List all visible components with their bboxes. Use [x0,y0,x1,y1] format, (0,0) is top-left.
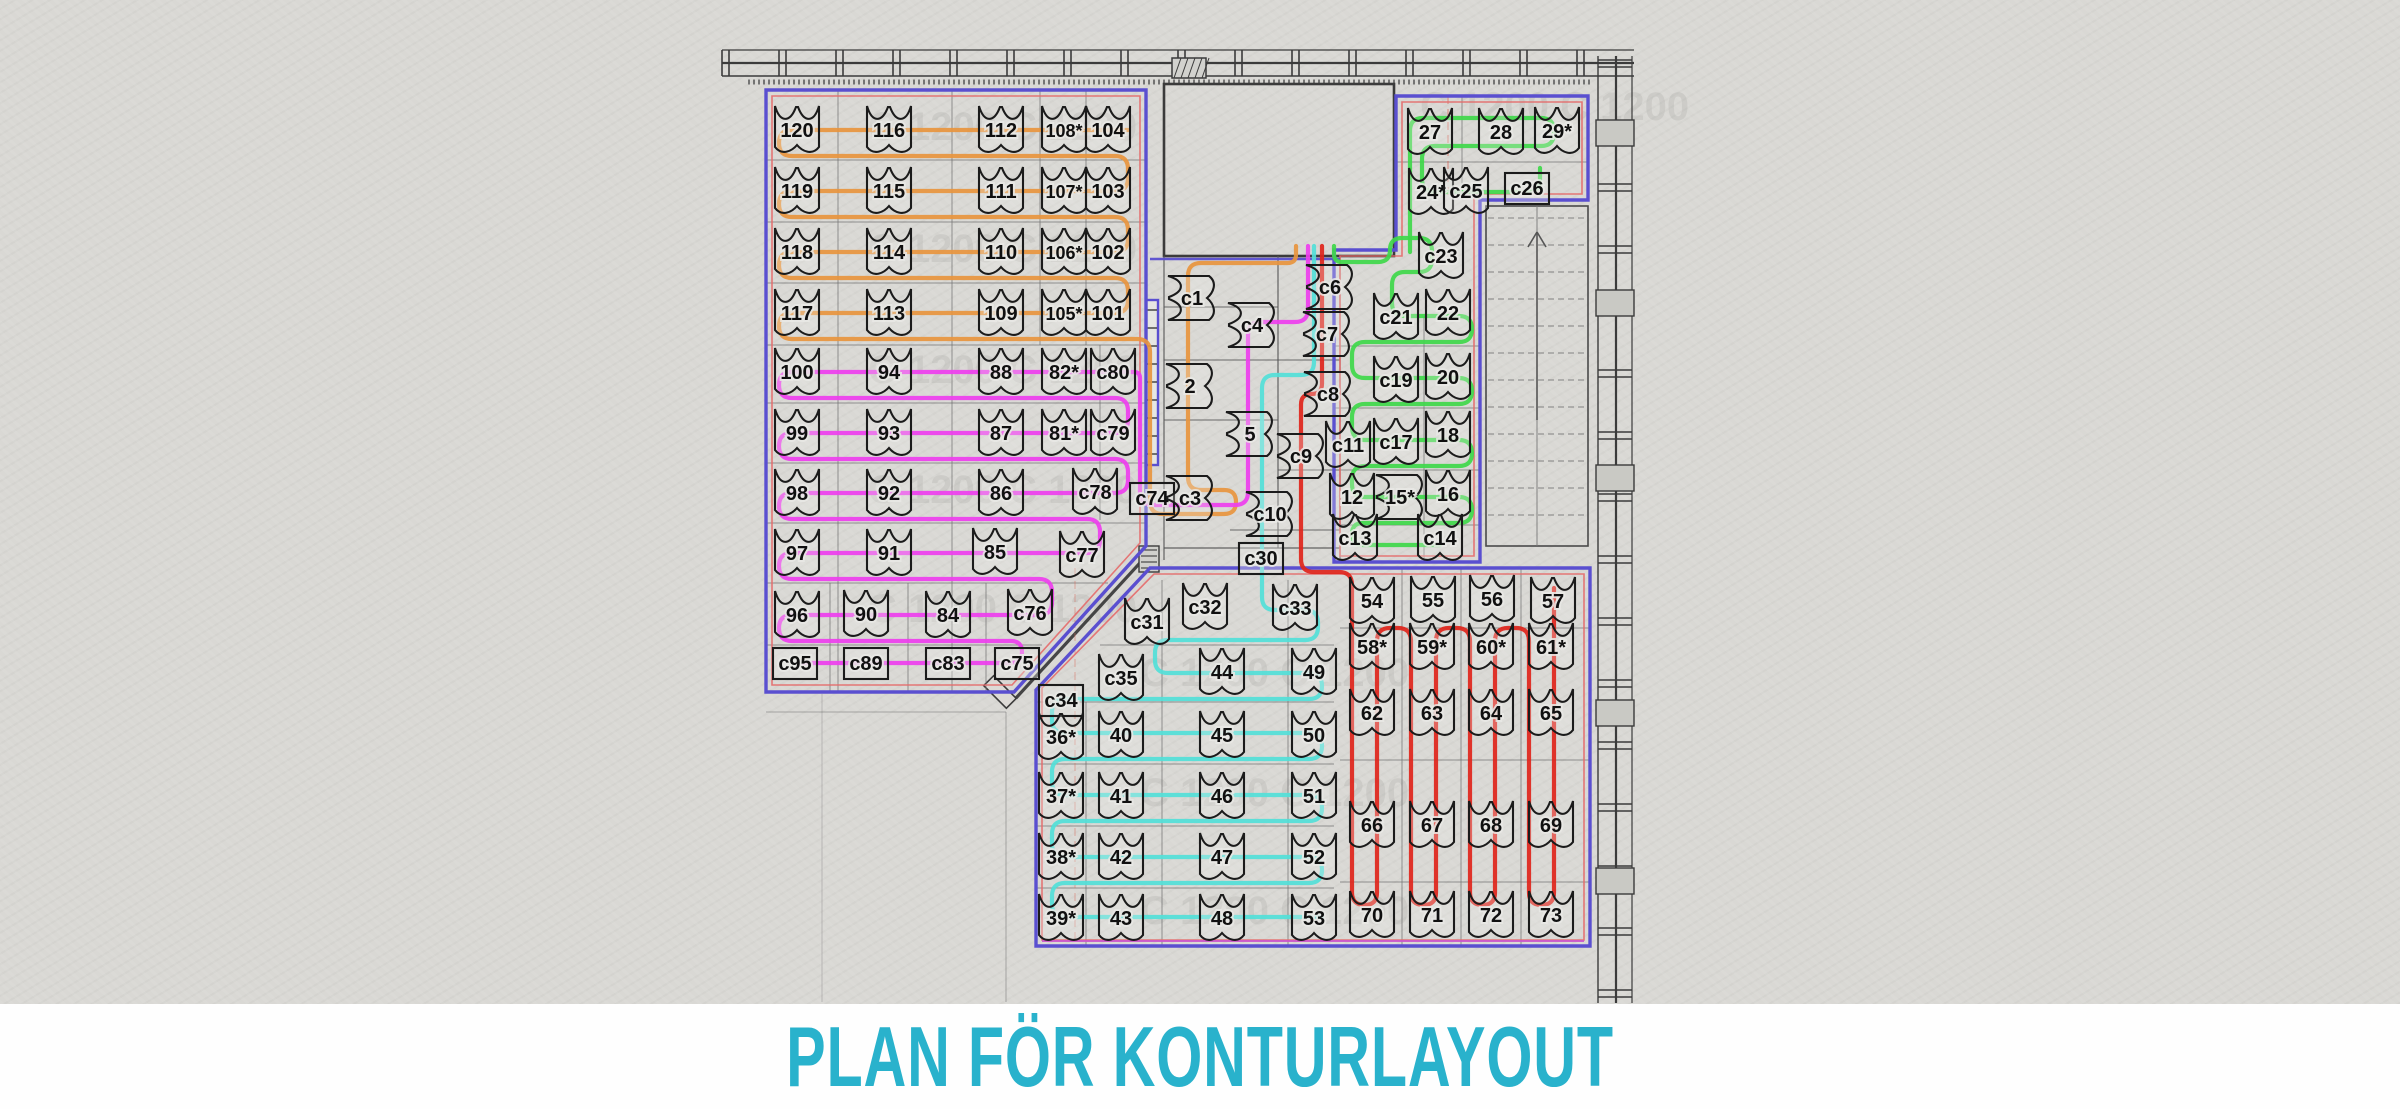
seat-label: 40 [1110,725,1132,747]
seat-label: 94 [878,362,901,384]
seat-label: 62 [1361,703,1383,725]
seat-c30: c30 [1239,543,1283,574]
seat-label: 102 [1091,242,1124,264]
seat-label: c74 [1135,488,1169,510]
seat-label: 66 [1361,815,1383,837]
seat-c7: c7 [1303,312,1349,356]
seat-label: 108* [1045,121,1082,141]
seat-label: c9 [1290,446,1312,468]
seat-label: 12 [1341,487,1363,509]
seat-label: 85 [984,542,1006,564]
seat-45: 45 [1200,711,1244,757]
seat-36*: 36* [1039,713,1083,759]
seat-81*: 81* [1042,409,1086,455]
seat-16: 16 [1426,470,1470,516]
seat-15*: 15* [1376,475,1422,519]
seat-label: 57 [1542,591,1564,613]
seat-20: 20 [1426,353,1470,399]
seat-label: 97 [786,543,808,565]
seat-label: 46 [1211,786,1233,808]
seat-label: 86 [990,483,1012,505]
seat-c1: c1 [1168,276,1214,320]
seat-107*: 107* [1042,167,1086,213]
seat-label: 90 [855,604,877,626]
seat-c9: c9 [1277,434,1323,478]
seat-label: 39* [1046,908,1076,930]
seat-96: 96 [775,591,819,637]
seat-label: 68 [1480,815,1502,837]
seat-118: 118 [775,228,819,274]
seat-label: 105* [1045,304,1082,324]
seat-label: 118 [781,242,813,264]
seat-label: 92 [878,483,900,505]
seat-c14: c14 [1418,514,1462,560]
seat-99: 99 [775,409,819,455]
seat-label: 63 [1421,703,1443,725]
seat-label: 103 [1091,181,1124,203]
seat-label: c19 [1379,370,1412,392]
seat-label: 50 [1303,725,1325,747]
seat-40: 40 [1099,711,1143,757]
seat-label: 59* [1417,637,1447,659]
seat-label: 16 [1437,484,1459,506]
seat-label: 48 [1211,908,1233,930]
seat-43: 43 [1099,894,1143,940]
seat-label: 43 [1110,908,1132,930]
zone-corridor: c1c6c4c72c85c9c74c3c10c30 [1130,265,1352,574]
seat-label: 117 [781,303,813,325]
seat-109: 109 [979,289,1023,335]
seat-63: 63 [1410,689,1454,735]
seat-c10: c10 [1246,492,1292,536]
title-band: PLAN FÖR KONTURLAYOUT [0,1004,2400,1109]
seat-120: 120 [775,106,819,152]
seat-label: 55 [1422,590,1444,612]
seat-label: 104 [1091,120,1125,142]
floor-plan-drawing: C 1200 C 1200C 1200 C 1200C 1200 C 1200C… [0,0,2400,1109]
seat-label: 60* [1476,637,1506,659]
seat-label: c33 [1278,598,1311,620]
seat-label: 98 [786,483,808,505]
seat-62: 62 [1350,689,1394,735]
seat-c21: c21 [1374,293,1418,339]
seat-label: 114 [873,242,906,264]
seat-label: c89 [849,653,882,675]
seat-73: 73 [1529,891,1573,937]
seat-label: 2 [1184,376,1195,398]
seat-105*: 105* [1042,289,1086,335]
seat-label: c7 [1316,324,1338,346]
seat-67: 67 [1410,801,1454,847]
seat-label: 37* [1046,786,1076,808]
seat-label: 81* [1049,423,1079,445]
seat-label: 82* [1049,362,1079,384]
zone-cyan: c31c32c33c354449c3436*40455037*41465138*… [1039,583,1336,940]
seat-label: 47 [1211,847,1233,869]
seat-103: 103 [1086,167,1130,213]
seat-label: c17 [1379,432,1412,454]
seat-c89: c89 [844,648,888,679]
seat-label: c4 [1241,315,1264,337]
seat-label: 106* [1045,243,1082,263]
seat-label: 69 [1540,815,1562,837]
seat-label: 112 [985,120,1017,142]
wall-pier [1596,290,1634,316]
seat-117: 117 [775,289,819,335]
seat-113: 113 [867,289,911,335]
wall-pier [1596,868,1634,894]
seat-label: c23 [1424,246,1457,268]
seat-c35: c35 [1099,654,1143,700]
seat-label: 73 [1540,905,1562,927]
seat-label: 53 [1303,908,1325,930]
seat-c34: c34 [1039,685,1083,716]
seat-label: c35 [1104,668,1137,690]
seat-label: c77 [1065,545,1098,567]
seat-55: 55 [1411,576,1455,622]
seat-label: c3 [1179,488,1201,510]
wall-pier [1596,700,1634,726]
seat-label: c78 [1078,482,1111,504]
seat-label: 52 [1303,847,1325,869]
seat-label: c1 [1181,288,1203,310]
seat-label: 28 [1490,122,1512,144]
seat-label: c31 [1130,612,1163,634]
empty-room [1164,84,1394,256]
seat-label: 22 [1437,303,1459,325]
seat-label: 38* [1046,847,1076,869]
seat-c26: c26 [1505,173,1549,204]
seat-label: 18 [1437,425,1459,447]
seat-38*: 38* [1039,833,1083,879]
seat-label: 44 [1211,662,1234,684]
seat-label: c80 [1096,362,1129,384]
seat-c8: c8 [1304,372,1350,416]
seat-label: 111 [985,181,1016,203]
seat-label: 113 [873,303,905,325]
seat-54: 54 [1350,577,1394,623]
seat-label: c13 [1338,528,1371,550]
seat-label: 24* [1416,182,1446,204]
seat-85: 85 [973,528,1017,574]
seat-111: 111 [979,167,1023,213]
seat-label: 54 [1361,591,1384,613]
seat-56: 56 [1470,575,1514,621]
seat-label: c8 [1317,384,1339,406]
seat-label: 99 [786,423,808,445]
seat-c19: c19 [1374,356,1418,402]
seat-100: 100 [775,348,819,394]
seat-label: 88 [990,362,1012,384]
seat-c33: c33 [1273,584,1317,630]
seat-c75: c75 [995,648,1039,679]
seat-label: c21 [1379,307,1412,329]
seat-label: 67 [1421,815,1443,837]
seat-87: 87 [979,409,1023,455]
seat-label: 96 [786,605,808,627]
seat-115: 115 [867,167,911,213]
seat-c17: c17 [1374,418,1418,464]
seat-label: 70 [1361,905,1383,927]
seat-label: 101 [1091,303,1124,325]
seat-label: 29* [1542,121,1572,143]
seat-label: c83 [931,653,964,675]
seat-label: 61* [1536,637,1566,659]
seat-label: c14 [1423,528,1457,550]
seat-label: 41 [1110,786,1132,808]
seat-69: 69 [1529,801,1573,847]
seat-2: 2 [1166,364,1212,408]
seat-61*: 61* [1529,623,1573,669]
seat-label: 109 [984,303,1017,325]
page-title: PLAN FÖR KONTURLAYOUT [264,1009,2136,1106]
seat-c83: c83 [926,648,970,679]
seat-label: 84 [937,605,960,627]
seat-c32: c32 [1183,583,1227,629]
floor-plan-page: C 1200 C 1200C 1200 C 1200C 1200 C 1200C… [0,0,2400,1109]
seat-57: 57 [1531,577,1575,623]
wall-pier [1596,120,1634,146]
seat-label: 110 [985,242,1017,264]
seat-label: c75 [1000,653,1033,675]
seat-label: 91 [878,543,900,565]
seat-label: 119 [781,181,813,203]
zone-green: 272829*24*c25c26c23c2122c1920c11c1718121… [1326,107,1579,560]
heating-route [779,130,1296,514]
seat-101: 101 [1086,289,1130,335]
seat-68: 68 [1469,801,1513,847]
seat-label: 49 [1303,662,1325,684]
seat-label: 27 [1419,122,1441,144]
seat-c4: c4 [1228,303,1274,347]
seat-label: c6 [1319,277,1341,299]
seat-label: 72 [1480,905,1502,927]
seat-119: 119 [775,167,819,213]
seat-50: 50 [1292,711,1336,757]
seat-c95: c95 [773,648,817,679]
seat-65: 65 [1529,689,1573,735]
seat-label: 116 [873,120,905,142]
seat-52: 52 [1292,833,1336,879]
seat-label: c26 [1510,178,1543,200]
seat-37*: 37* [1039,772,1083,818]
seat-5: 5 [1226,412,1272,456]
seat-label: 64 [1480,703,1503,725]
seat-label: 56 [1481,589,1503,611]
seat-label: c25 [1449,181,1482,203]
seat-39*: 39* [1039,894,1083,940]
seat-label: c30 [1244,548,1277,570]
seat-label: 107* [1045,182,1082,202]
seat-label: c32 [1188,597,1221,619]
seat-label: c95 [778,653,811,675]
seat-label: 87 [990,423,1012,445]
wall-pier [1596,465,1634,491]
seat-label: 65 [1540,703,1562,725]
seat-label: c76 [1013,603,1046,625]
seat-42: 42 [1099,833,1143,879]
seat-22: 22 [1426,289,1470,335]
seat-label: c11 [1332,435,1364,457]
seat-label: 58* [1357,637,1387,659]
seat-93: 93 [867,409,911,455]
seat-label: 93 [878,423,900,445]
seat-18: 18 [1426,411,1470,457]
seat-71: 71 [1410,891,1454,937]
seat-91: 91 [867,529,911,575]
seat-label: 36* [1046,727,1076,749]
seat-97: 97 [775,529,819,575]
seat-98: 98 [775,469,819,515]
seat-64: 64 [1469,689,1513,735]
seat-12: 12 [1330,473,1374,519]
seat-label: 51 [1303,786,1325,808]
seat-label: 20 [1437,367,1459,389]
seat-label: 100 [780,362,813,384]
seat-c77: c77 [1060,531,1104,577]
seat-41: 41 [1099,772,1143,818]
seat-label: c10 [1253,504,1286,526]
seat-label: 5 [1244,424,1255,446]
seat-label: c79 [1096,423,1129,445]
seat-label: 115 [873,181,905,203]
seat-label: 15* [1385,487,1415,509]
seat-label: 45 [1211,725,1233,747]
seat-label: 120 [780,120,813,142]
seat-47: 47 [1200,833,1244,879]
seat-label: 71 [1421,905,1443,927]
seat-72: 72 [1469,891,1513,937]
seat-label: c34 [1044,690,1078,712]
seat-label: 42 [1110,847,1132,869]
